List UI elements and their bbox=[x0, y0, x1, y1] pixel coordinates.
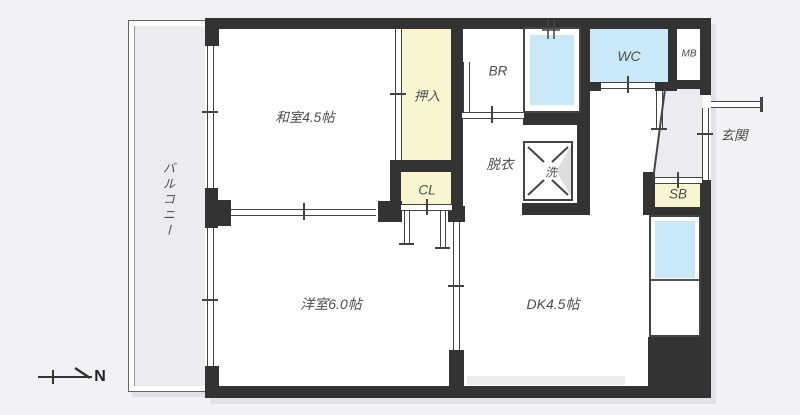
wall-mass-bottom-right bbox=[648, 337, 711, 398]
room-label-wc: WC bbox=[617, 48, 640, 64]
door-bath-bottom bbox=[462, 112, 524, 119]
room-label-yoshitsu: 洋室6.0帖 bbox=[300, 294, 361, 314]
room-label-laundry: 洗 bbox=[545, 164, 557, 181]
room-label-oshiire: 押入 bbox=[414, 86, 440, 105]
floorplan-canvas: バルコニー bbox=[0, 0, 800, 415]
wall-genkan-right-thin bbox=[702, 108, 709, 180]
balcony-label: バルコニー bbox=[159, 161, 178, 239]
north-label: N bbox=[94, 368, 106, 386]
tick-bath-door bbox=[491, 106, 493, 123]
tick-wc-door bbox=[627, 76, 629, 93]
tick-genkan-wall bbox=[697, 133, 713, 135]
wall-mb-bottom bbox=[668, 80, 711, 89]
kitchen-divider bbox=[651, 279, 699, 281]
pillar-partition-left bbox=[205, 200, 231, 226]
door-entrance bbox=[711, 101, 763, 108]
room-label-genkan: 玄関 bbox=[721, 124, 748, 144]
door-closet-leaf-1 bbox=[404, 211, 410, 244]
pillar-balcony-bottom bbox=[205, 366, 219, 398]
wall-datsui-bottom bbox=[522, 203, 590, 215]
kitchen-sink bbox=[655, 221, 695, 278]
wall-shoebox-bottom bbox=[643, 207, 711, 215]
room-label-datsui: 脱衣 bbox=[487, 153, 514, 173]
room-label-dk: DK4.5帖 bbox=[527, 294, 580, 314]
wall-closet-left bbox=[390, 160, 401, 207]
room-label-mb: MB bbox=[682, 49, 697, 60]
north-arrow-line bbox=[38, 376, 92, 378]
tick-partition bbox=[303, 203, 305, 220]
wall-washitsu-right bbox=[451, 18, 463, 220]
tick-closet-leaf-1 bbox=[399, 243, 414, 245]
pillar-partition-right bbox=[378, 201, 402, 222]
room-label-closet: CL bbox=[418, 183, 435, 198]
door-bath-leaf bbox=[463, 62, 470, 113]
north-arrow-tick bbox=[52, 370, 54, 384]
door-closet-leaf-2 bbox=[440, 211, 446, 248]
dk-floor-shading bbox=[467, 376, 625, 385]
tick-yodk-door bbox=[448, 285, 464, 287]
tick-window-washitsu bbox=[202, 111, 218, 113]
wall-wc-door-left-nub bbox=[588, 82, 601, 91]
pillar-balcony-top bbox=[205, 18, 219, 46]
tick-oshiire bbox=[390, 93, 406, 95]
room-label-shoebox: SB bbox=[669, 187, 687, 202]
tick-closet-door bbox=[426, 199, 428, 215]
room-label-washitsu: 和室4.5帖 bbox=[275, 106, 334, 126]
window-yoshitsu-balcony bbox=[207, 228, 214, 366]
tick-wc-leaf-end bbox=[651, 128, 667, 130]
pillar-yodk-bottom bbox=[449, 350, 464, 390]
tick-closet-leaf-2 bbox=[435, 247, 450, 249]
door-wc-leaf bbox=[656, 91, 663, 129]
tick-window-yoshitsu bbox=[202, 299, 218, 301]
tick-entrance-door-end bbox=[760, 97, 763, 112]
bathtub-water bbox=[530, 35, 574, 105]
room-label-bath: BR bbox=[489, 64, 508, 79]
window-washitsu-balcony bbox=[207, 46, 214, 188]
wall-mb-divider bbox=[668, 18, 677, 88]
